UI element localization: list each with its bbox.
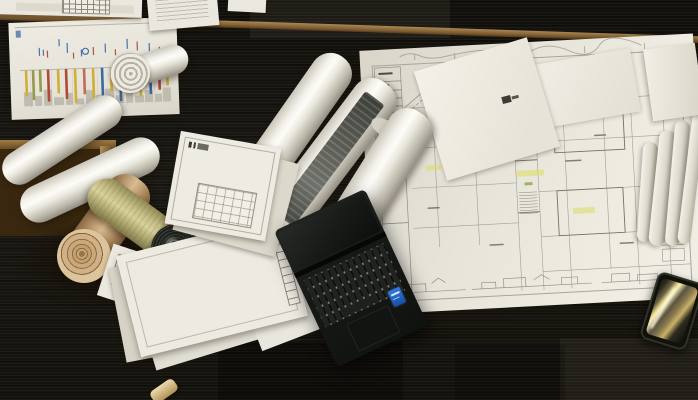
folded-sheet-corner (643, 43, 698, 122)
document-table-grid (62, 0, 110, 15)
document-text-lines (155, 0, 209, 24)
carpet-tile (455, 345, 565, 400)
cover-sheet (165, 131, 282, 241)
top-document-corner (228, 0, 267, 13)
carpet-tile (218, 342, 403, 400)
light-glint (650, 288, 676, 329)
small-roll-spiral-end (110, 53, 150, 93)
desk-scene-photo (0, 0, 698, 400)
